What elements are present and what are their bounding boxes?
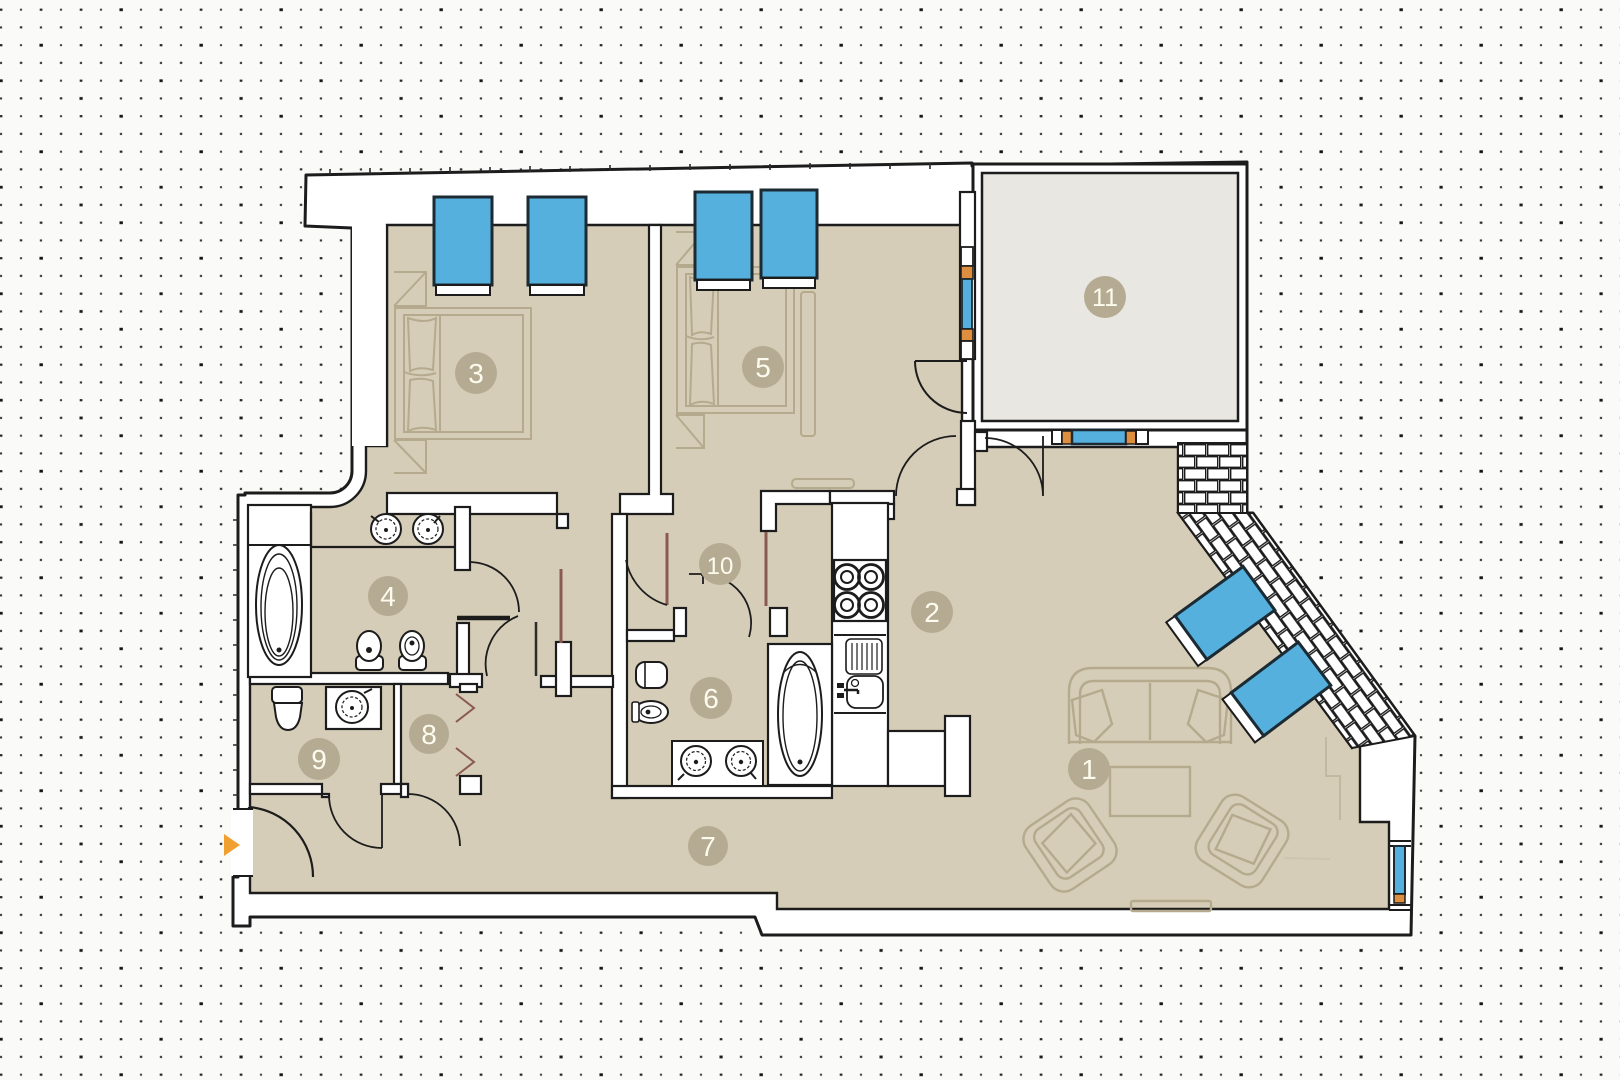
svg-text:9: 9 bbox=[311, 744, 327, 775]
svg-text:8: 8 bbox=[421, 719, 437, 750]
svg-text:6: 6 bbox=[703, 683, 719, 714]
svg-text:11: 11 bbox=[1092, 284, 1118, 312]
svg-text:4: 4 bbox=[380, 581, 396, 612]
svg-text:7: 7 bbox=[700, 831, 716, 862]
svg-text:3: 3 bbox=[468, 358, 484, 389]
svg-text:2: 2 bbox=[924, 597, 940, 628]
svg-text:1: 1 bbox=[1081, 754, 1097, 785]
svg-text:5: 5 bbox=[755, 352, 771, 383]
svg-text:10: 10 bbox=[707, 553, 734, 580]
